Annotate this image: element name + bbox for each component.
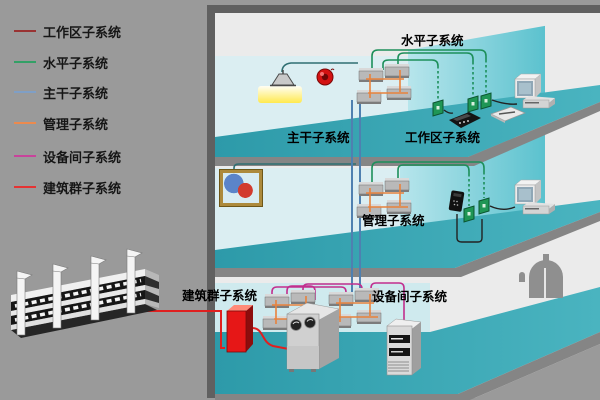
label-management-subsystem: 管理子系统 — [362, 215, 425, 228]
fax-machine-icon — [447, 108, 483, 132]
wall-outlet-icon — [478, 197, 490, 215]
pbx-cabinet-icon — [283, 300, 341, 372]
campus-building-icon — [5, 246, 173, 348]
switch-cluster-icon — [356, 62, 414, 110]
building-entrance-box-icon — [224, 302, 256, 354]
lamp-glow — [258, 86, 302, 103]
wall-outlet-icon — [432, 99, 444, 117]
cabling-system-diagram: 工作区子系统 水平子系统 主干子系统 管理子系统 设备间子系统 建筑群子系统 — [0, 0, 600, 400]
doorway-icon — [528, 254, 566, 298]
desktop-computer-icon — [511, 72, 557, 114]
label-backbone-subsystem: 主干子系统 — [287, 132, 350, 145]
small-figure-icon — [519, 272, 525, 282]
label-equipment-room-subsystem: 设备间子系统 — [372, 291, 447, 304]
label-work-area-subsystem: 工作区子系统 — [405, 132, 480, 145]
label-horizontal-subsystem: 水平子系统 — [401, 35, 464, 48]
label-campus-subsystem: 建筑群子系统 — [182, 290, 257, 303]
wall-phone-icon — [446, 188, 468, 214]
wall-picture-icon — [220, 170, 262, 206]
fire-alarm-icon — [315, 66, 335, 86]
ceiling-lamp-icon — [268, 70, 298, 87]
desktop-computer-icon — [511, 178, 557, 220]
server-rack-icon — [385, 316, 425, 378]
